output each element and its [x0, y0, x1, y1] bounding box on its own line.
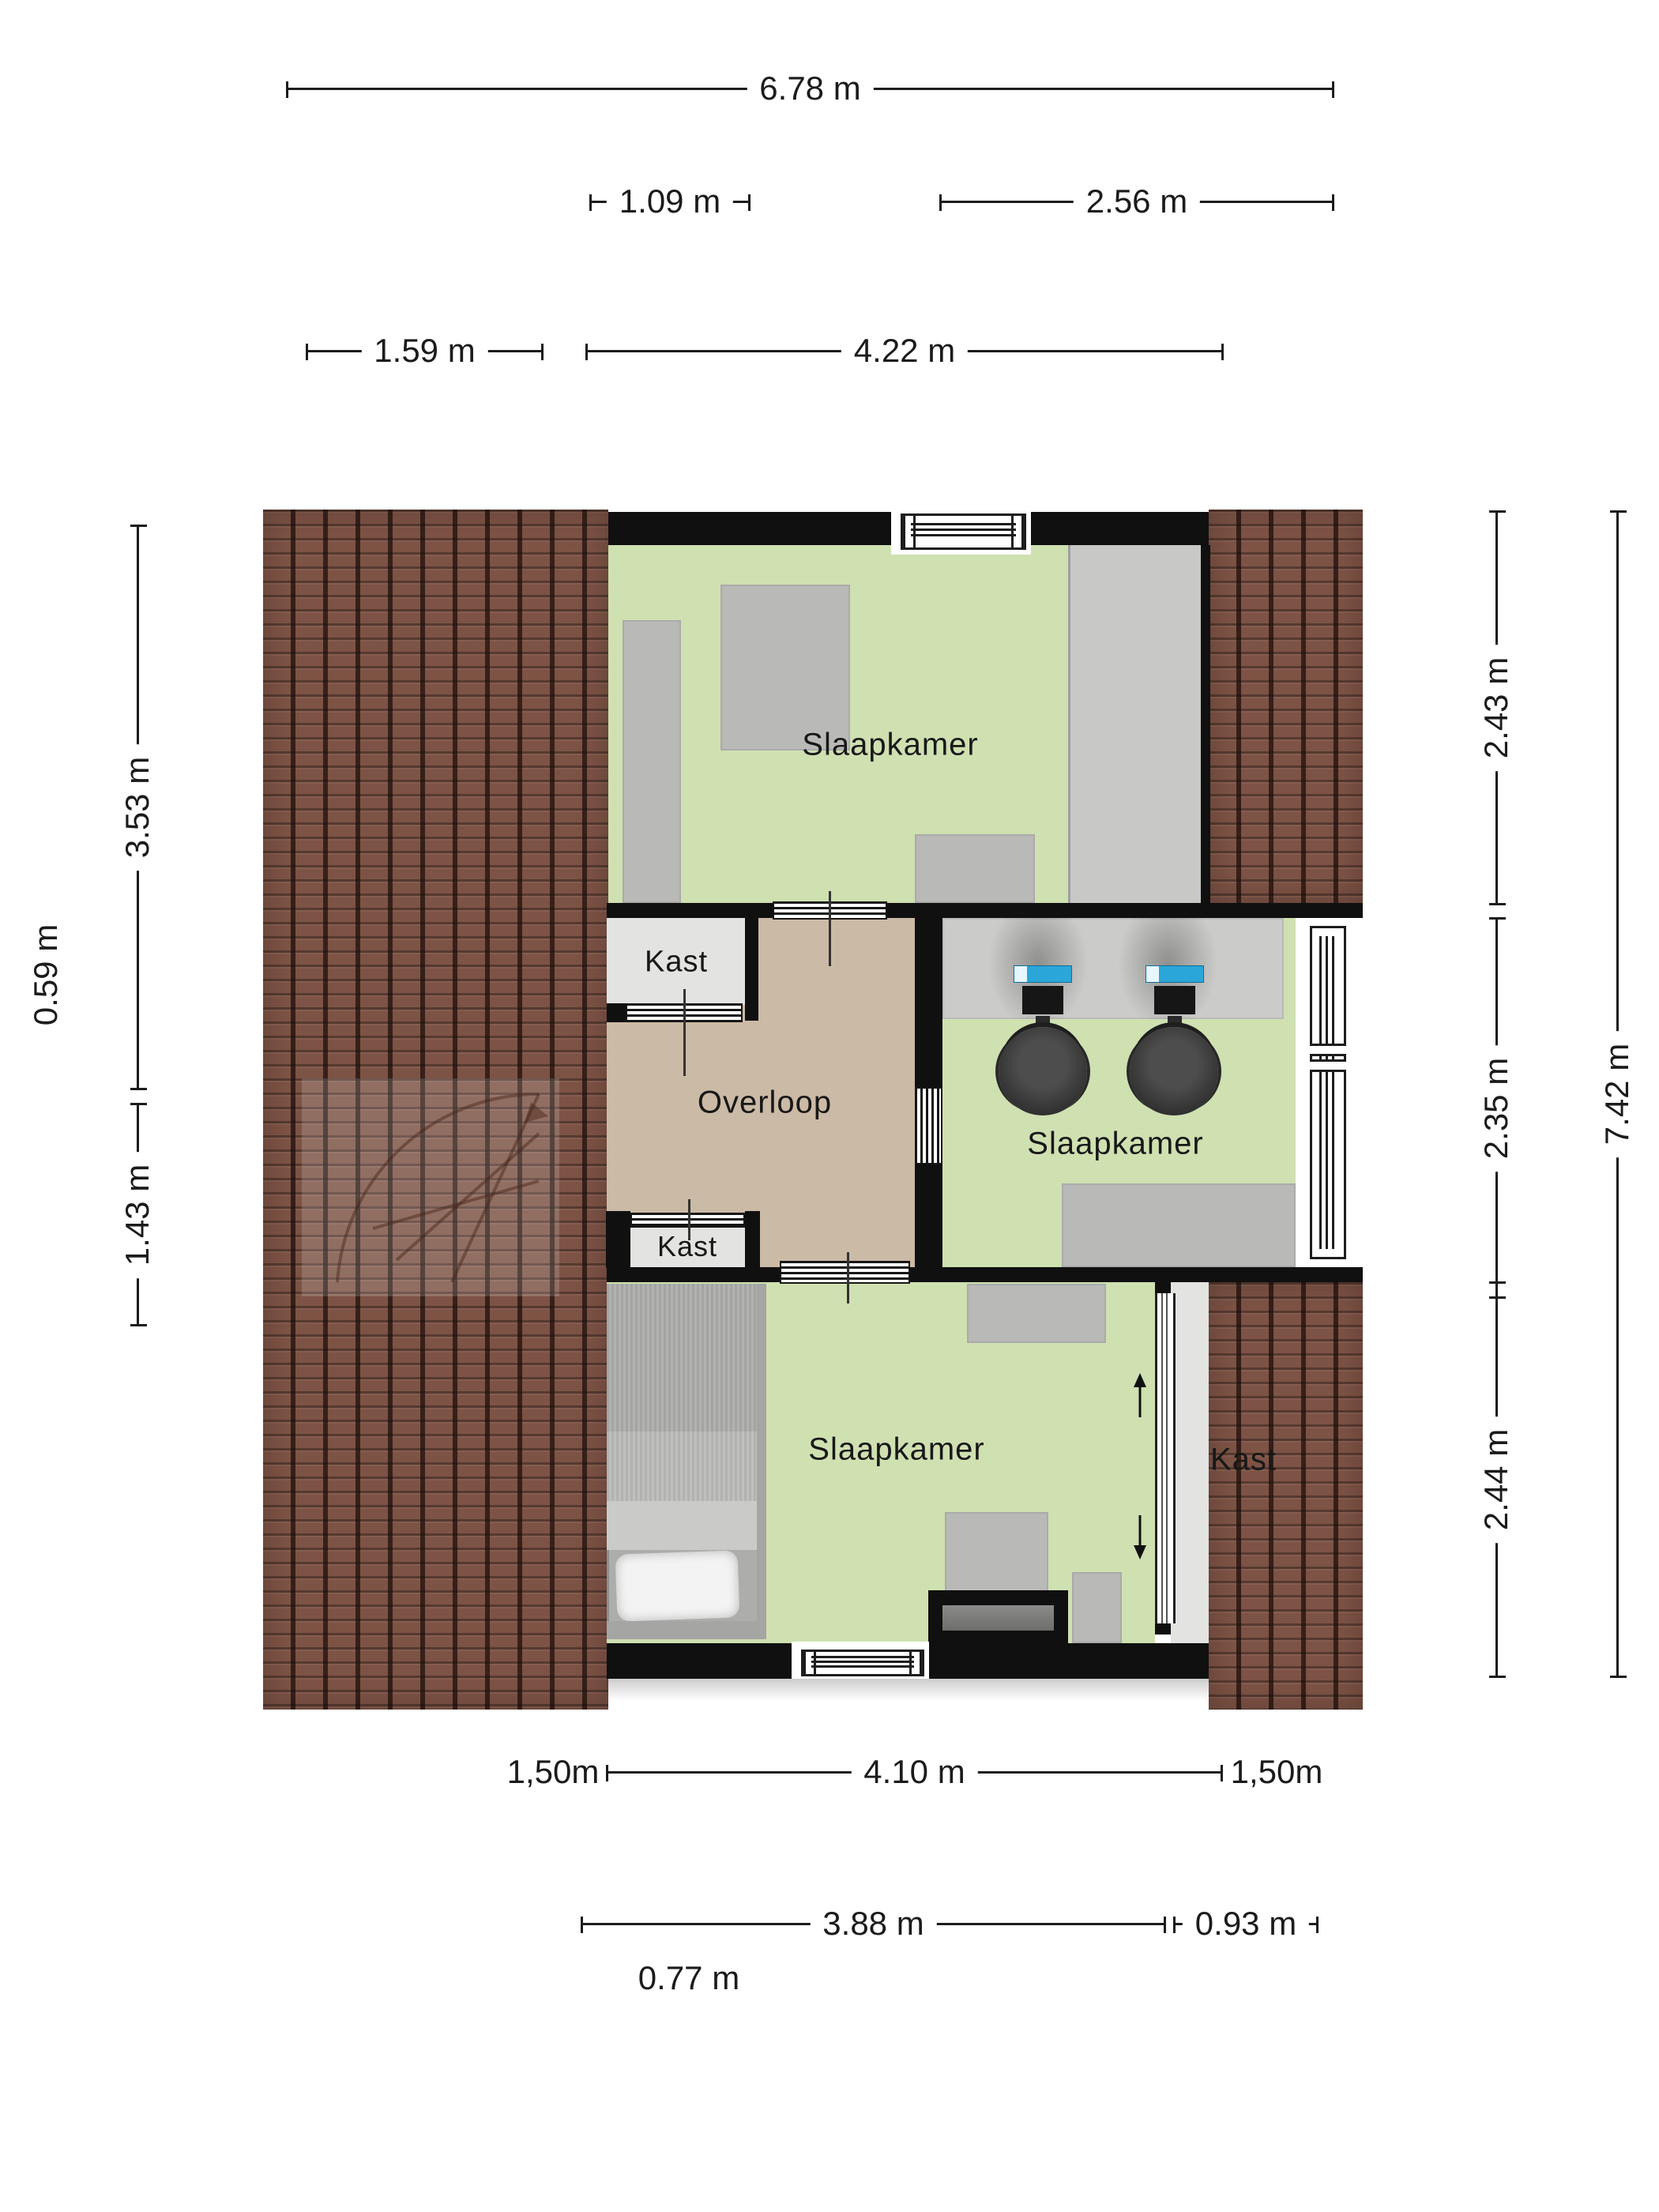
- dim-roof-bottom-height: 1.43 m: [137, 1104, 139, 1326]
- slide-track-cap-bottom: [1155, 1623, 1171, 1635]
- dim-eave-right-bottom: 1,50m: [1224, 1753, 1330, 1791]
- door-hall-bedroommid: [915, 1087, 942, 1164]
- roof-stair-opening: [302, 1078, 559, 1296]
- slide-track-cap-top: [1155, 1282, 1171, 1293]
- dresser-top-room: [915, 834, 1035, 903]
- wall-closetmid-left: [606, 1211, 630, 1268]
- door-swing-closet-top: [683, 989, 686, 1076]
- bed-frame: [607, 1621, 766, 1639]
- room-label-closet-mid: Kast: [657, 1230, 717, 1263]
- roof-right-top: [1209, 510, 1363, 903]
- room-label-bedroom-bottom: Slaapkamer: [808, 1432, 984, 1468]
- dim-label: 4.22 m: [841, 332, 968, 370]
- window-top-frame: [901, 513, 1026, 550]
- room-label-closet-bottom: Kast: [1210, 1443, 1277, 1478]
- cabinet-bottom-room-top: [967, 1284, 1106, 1343]
- dim-bedroom-mid-height: 2.35 m: [1495, 918, 1498, 1298]
- dim-roof-top-height: 3.53 m: [137, 525, 139, 1089]
- dim-label: 2.44 m: [1477, 1416, 1515, 1543]
- dim-label: 2.56 m: [1074, 182, 1200, 220]
- dim-label: 7.42 m: [1598, 1031, 1636, 1157]
- dim-label: 2.43 m: [1477, 645, 1515, 771]
- dim-bedroom-top-width: 4.22 m: [586, 350, 1223, 352]
- window-bottom-frame: [801, 1650, 924, 1676]
- monitor: [1014, 965, 1072, 1025]
- roof-right-bottom: [1209, 1282, 1363, 1710]
- office-chair: [1130, 1027, 1218, 1115]
- monitor-foot: [1036, 1016, 1050, 1025]
- wall-closettop-jamb: [607, 1003, 626, 1022]
- cabinet-top-room: [720, 585, 850, 750]
- dim-bedroom-mid-width: 2.56 m: [940, 201, 1334, 203]
- dim-label: 4.10 m: [851, 1753, 977, 1791]
- monitor-screen: [1014, 965, 1072, 983]
- dim-window-width-bottom: 0.93 m: [1174, 1923, 1318, 1925]
- dim-roof-left-width: 1.59 m: [307, 350, 543, 352]
- dim-total-height: 7.42 m: [1616, 511, 1619, 1677]
- bed-mid-room: [1062, 1183, 1296, 1267]
- door-swing-bedroomtop: [829, 891, 831, 966]
- mattress-lower: [607, 1431, 757, 1501]
- room-label-closet-top: Kast: [645, 946, 708, 980]
- monitor-foot: [1168, 1016, 1182, 1025]
- dim-bedroom-top-height: 2.43 m: [1495, 511, 1498, 905]
- mattress-upper: [607, 1284, 757, 1431]
- door-hall-bedroombottom: [780, 1261, 910, 1284]
- monitor: [1145, 965, 1204, 1025]
- dim-window-offset-bottom: 3.88 m: [581, 1923, 1165, 1925]
- wall-closettop-right: [745, 918, 758, 1021]
- wall-hall-bottom: [607, 1267, 1363, 1282]
- monitor-body: [1154, 986, 1195, 1014]
- building-shadow: [607, 1679, 1209, 1701]
- room-label-bedroom-top: Slaapkamer: [802, 728, 978, 763]
- track-line: [1161, 1293, 1163, 1623]
- monitor-screen: [1145, 965, 1204, 983]
- dim-door-offset-bottom: 0.77 m: [632, 1959, 746, 1997]
- dim-label: 6.78 m: [747, 70, 873, 107]
- dim-eave-height: 0.59 m: [27, 918, 65, 1032]
- wardrobe-strip-top-room: [623, 620, 681, 903]
- dim-closet-width: 1.09 m: [590, 201, 750, 203]
- bed-rail: [757, 1284, 766, 1639]
- dim-label: 3.88 m: [810, 1905, 936, 1943]
- pillow: [615, 1550, 740, 1621]
- dim-total-width: 6.78 m: [287, 88, 1334, 90]
- dim-bedroom-bottom-width: 4.10 m: [607, 1771, 1222, 1774]
- arrow-up-icon: [1130, 1373, 1150, 1419]
- cabinet-bottom-room-small: [1072, 1572, 1122, 1643]
- closet-bottom-floor: [1171, 1282, 1209, 1643]
- wall-closetmid-right: [745, 1211, 760, 1268]
- dim-label: 1.59 m: [361, 332, 487, 370]
- sliding-door-track: [1155, 1293, 1176, 1623]
- monitor-body: [1022, 986, 1063, 1014]
- dim-eave-left-bottom: 1,50m: [501, 1753, 606, 1791]
- chimney-flue: [942, 1605, 1054, 1631]
- office-chair: [999, 1027, 1087, 1115]
- track-line: [1166, 1293, 1168, 1623]
- wall-bedroomtop-right: [1201, 545, 1210, 903]
- room-label-bedroom-mid: Slaapkamer: [1027, 1127, 1203, 1162]
- chimney-box: [928, 1590, 1068, 1643]
- arrow-down-icon: [1130, 1514, 1150, 1559]
- bedroom-top-loft-zone: [1068, 545, 1206, 903]
- desk: [942, 918, 1284, 1019]
- stairs-ghost-icon: [302, 1078, 559, 1296]
- blanket: [607, 1501, 757, 1550]
- dim-label: 3.53 m: [118, 744, 156, 871]
- floorplan-canvas: Slaapkamer Overloop Slaapkamer Slaapkame…: [0, 0, 1659, 2212]
- wall-bedroomtop-bottom: [607, 903, 1363, 918]
- dim-label: 0.93 m: [1183, 1905, 1309, 1943]
- window-right-frame: [1310, 926, 1346, 1259]
- dim-bedroom-bottom-height: 2.44 m: [1495, 1282, 1498, 1677]
- room-label-hall: Overloop: [698, 1085, 832, 1121]
- door-swing-bedroombottom: [847, 1252, 849, 1303]
- bed: [607, 1284, 766, 1639]
- dim-label: 2.35 m: [1477, 1044, 1515, 1171]
- dim-label: 1.43 m: [118, 1151, 156, 1277]
- dim-label: 1.09 m: [607, 182, 733, 220]
